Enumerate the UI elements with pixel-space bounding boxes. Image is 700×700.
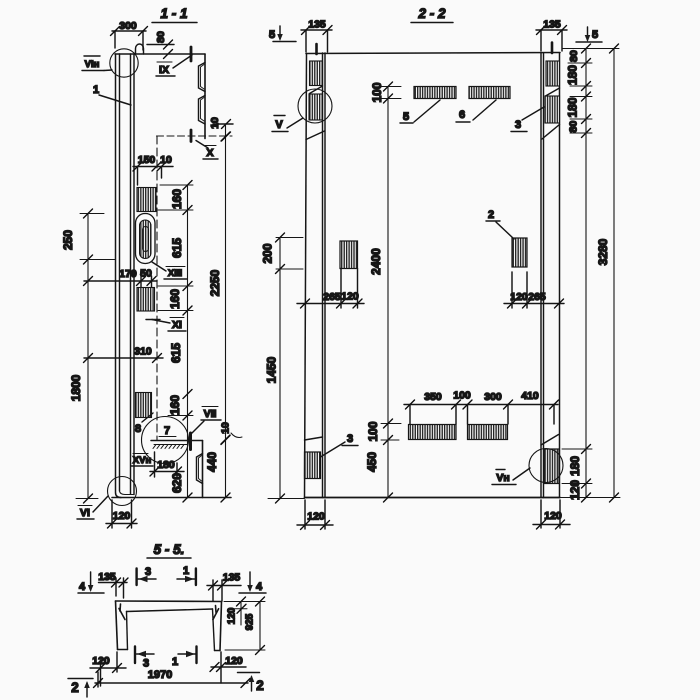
svg-text:120: 120	[510, 291, 528, 303]
svg-text:10: 10	[160, 154, 172, 166]
svg-text:615: 615	[170, 238, 184, 258]
svg-text:300: 300	[119, 20, 137, 32]
svg-text:120: 120	[92, 655, 110, 667]
svg-text:3: 3	[515, 119, 521, 131]
svg-text:80: 80	[155, 31, 167, 43]
svg-text:135: 135	[308, 19, 326, 31]
svg-text:120: 120	[227, 607, 238, 624]
svg-text:150: 150	[138, 154, 156, 166]
svg-text:160: 160	[168, 395, 182, 415]
svg-text:925: 925	[245, 613, 256, 630]
svg-text:180: 180	[157, 459, 175, 471]
svg-text:2: 2	[488, 209, 494, 221]
svg-text:160: 160	[168, 289, 182, 309]
svg-text:8: 8	[135, 423, 141, 435]
svg-text:170: 170	[119, 268, 137, 280]
svg-text:3: 3	[145, 566, 151, 578]
svg-text:440: 440	[205, 452, 219, 472]
svg-text:250: 250	[61, 230, 75, 250]
svg-text:2250: 2250	[208, 269, 222, 296]
svg-text:120: 120	[341, 291, 359, 303]
svg-text:1450: 1450	[265, 356, 279, 383]
svg-text:100: 100	[453, 390, 471, 402]
svg-text:300: 300	[484, 391, 502, 403]
svg-text:XI: XI	[172, 319, 182, 331]
svg-text:1: 1	[183, 565, 189, 577]
svg-text:5: 5	[403, 111, 409, 123]
svg-text:180: 180	[568, 456, 582, 476]
svg-text:2 - 2: 2 - 2	[417, 6, 446, 21]
svg-text:3: 3	[347, 433, 353, 445]
svg-text:6: 6	[459, 109, 465, 121]
svg-text:310: 310	[134, 346, 152, 358]
svg-text:3: 3	[143, 658, 149, 670]
svg-text:7: 7	[164, 425, 170, 437]
svg-text:5: 5	[592, 29, 598, 41]
svg-text:100: 100	[370, 82, 384, 102]
svg-text:4: 4	[256, 581, 263, 593]
svg-text:1: 1	[93, 84, 99, 96]
svg-text:350: 350	[424, 391, 442, 403]
svg-text:180: 180	[566, 97, 580, 117]
svg-text:180: 180	[566, 65, 580, 85]
svg-text:120: 120	[544, 510, 562, 522]
svg-text:620: 620	[170, 473, 184, 493]
svg-text:5 - 5.: 5 - 5.	[154, 542, 185, 557]
svg-text:2: 2	[71, 680, 79, 695]
svg-text:135: 135	[223, 572, 241, 584]
svg-text:4: 4	[79, 581, 86, 593]
svg-text:V: V	[275, 119, 283, 131]
svg-text:450: 450	[365, 452, 379, 472]
svg-text:1800: 1800	[69, 374, 83, 401]
svg-text:VII: VII	[204, 408, 217, 420]
svg-text:615: 615	[169, 343, 183, 363]
svg-text:410: 410	[521, 390, 539, 402]
svg-text:XIII: XIII	[168, 268, 182, 279]
svg-text:135: 135	[543, 19, 561, 31]
svg-text:265: 265	[323, 291, 341, 303]
svg-text:2400: 2400	[369, 248, 383, 275]
svg-text:Vн: Vн	[496, 472, 509, 484]
svg-text:3280: 3280	[596, 238, 610, 265]
svg-text:135: 135	[98, 571, 116, 583]
svg-text:XVн: XVн	[133, 455, 152, 466]
svg-text:50: 50	[140, 268, 152, 280]
svg-text:120: 120	[225, 655, 243, 667]
svg-text:160: 160	[170, 189, 184, 209]
svg-text:X: X	[206, 147, 213, 159]
svg-text:1970: 1970	[148, 669, 172, 681]
svg-text:1: 1	[172, 656, 178, 668]
svg-text:IX: IX	[159, 64, 169, 76]
svg-text:200: 200	[261, 243, 275, 263]
svg-text:100: 100	[366, 421, 380, 441]
svg-text:1 - 1: 1 - 1	[160, 6, 187, 21]
svg-text:120: 120	[113, 510, 131, 522]
svg-text:2: 2	[256, 678, 264, 693]
svg-text:VIн: VIн	[85, 59, 100, 70]
svg-text:80: 80	[568, 121, 580, 133]
svg-text:5: 5	[269, 29, 275, 41]
svg-text:120: 120	[307, 511, 325, 523]
svg-text:80: 80	[568, 50, 580, 62]
svg-text:VI: VI	[80, 507, 90, 519]
svg-text:120: 120	[568, 480, 582, 500]
svg-text:10: 10	[209, 117, 221, 129]
svg-text:265: 265	[528, 291, 546, 303]
